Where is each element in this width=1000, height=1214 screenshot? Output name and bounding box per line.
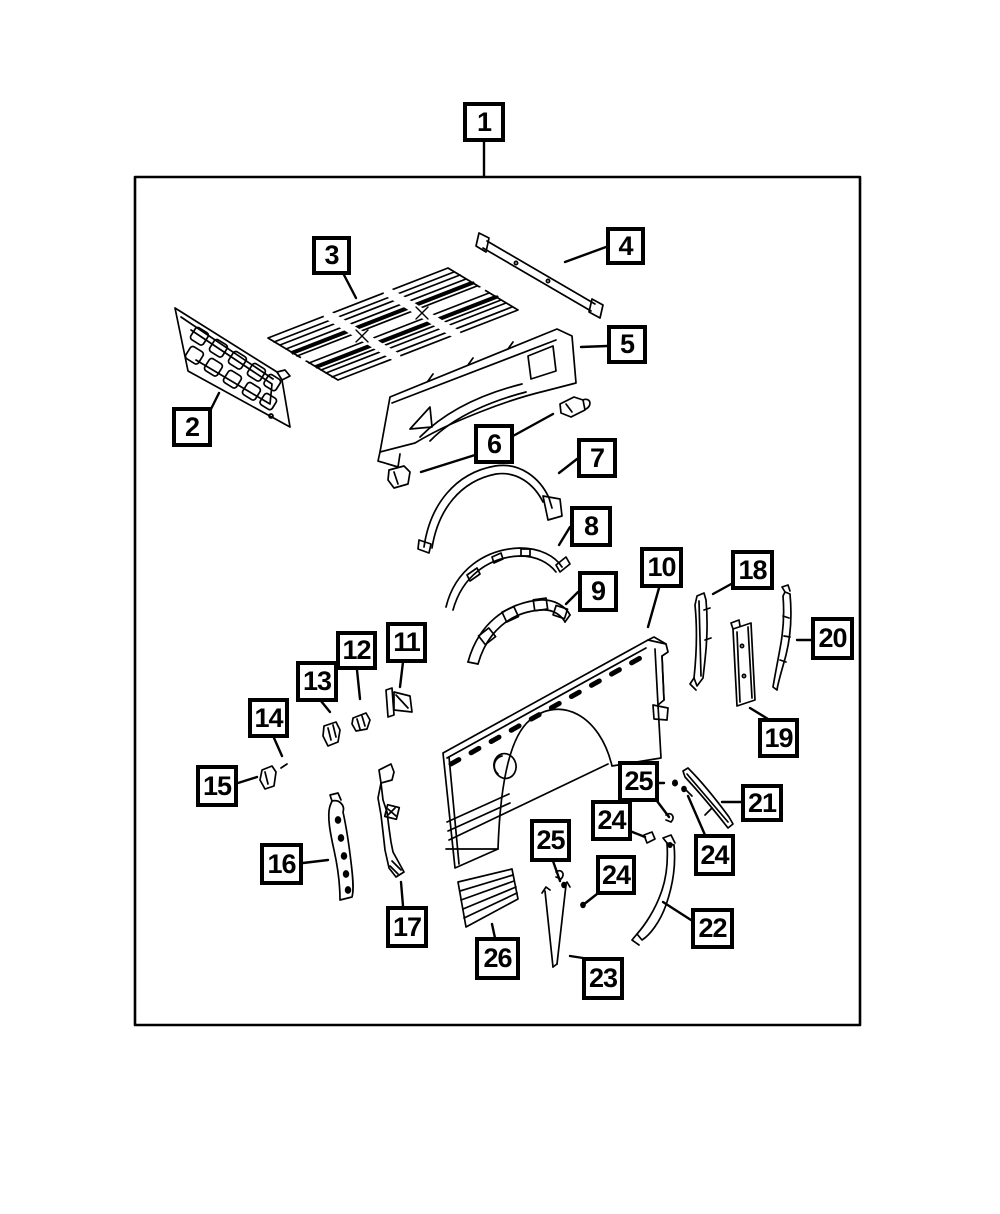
- part-9-inner-arch-drawing: [468, 598, 570, 664]
- callout-23[interactable]: 23: [582, 957, 624, 1000]
- part-23-seal-drawing: [542, 882, 570, 967]
- callout-24c[interactable]: 24: [596, 855, 636, 895]
- callout-17-label: 17: [393, 914, 421, 941]
- callout-20[interactable]: 20: [811, 617, 854, 660]
- part-17-brace-drawing: [378, 764, 404, 877]
- callout-22[interactable]: 22: [691, 908, 734, 949]
- callout-14[interactable]: 14: [248, 698, 289, 738]
- callout-10-label: 10: [647, 554, 675, 581]
- callout-12-label: 12: [342, 637, 370, 664]
- callout-21-label: 21: [748, 790, 776, 817]
- part-3-bed-floor-drawing: [268, 268, 518, 380]
- part-12-clip-drawing: [352, 713, 370, 731]
- callout-10[interactable]: 10: [640, 547, 683, 588]
- callout-25a[interactable]: 25: [618, 761, 659, 802]
- diagram-canvas: [0, 0, 1000, 1214]
- callout-21[interactable]: 21: [741, 784, 783, 822]
- part-16-brace-drawing: [329, 793, 353, 900]
- callout-25a-label: 25: [624, 768, 652, 795]
- callout-12[interactable]: 12: [336, 631, 377, 670]
- part-21-seal-strip-drawing: [683, 768, 733, 828]
- callout-25b-label: 25: [536, 827, 564, 854]
- callout-13[interactable]: 13: [296, 661, 338, 702]
- callout-11-label: 11: [393, 629, 420, 656]
- callout-25b[interactable]: 25: [530, 819, 571, 862]
- part-14-clip-drawing: [260, 764, 287, 789]
- callout-11[interactable]: 11: [386, 622, 427, 663]
- callout-6-label: 6: [487, 431, 501, 458]
- callout-7[interactable]: 7: [577, 438, 617, 478]
- callout-5-label: 5: [620, 331, 634, 358]
- callout-4-label: 4: [618, 233, 632, 260]
- callout-1-label: 1: [477, 109, 491, 136]
- callout-17[interactable]: 17: [386, 906, 428, 948]
- part-26-molding-drawing: [458, 869, 518, 927]
- callout-9-label: 9: [591, 578, 605, 605]
- callout-8[interactable]: 8: [570, 506, 612, 547]
- callout-2-label: 2: [185, 414, 199, 441]
- callout-18-label: 18: [738, 557, 766, 584]
- callout-15-label: 15: [203, 773, 231, 800]
- callout-3[interactable]: 3: [312, 236, 351, 275]
- callout-7-label: 7: [590, 445, 604, 472]
- callout-16-label: 16: [267, 851, 295, 878]
- callout-14-label: 14: [254, 705, 282, 732]
- callout-23-label: 23: [589, 965, 617, 992]
- callout-24a[interactable]: 24: [591, 800, 632, 841]
- part-18-stiffener-drawing: [690, 593, 711, 690]
- callout-24c-label: 24: [602, 862, 630, 889]
- callout-19-label: 19: [764, 725, 792, 752]
- callout-8-label: 8: [584, 513, 598, 540]
- part-19-reinforcement-drawing: [731, 620, 755, 706]
- callout-4[interactable]: 4: [606, 227, 645, 265]
- callout-22-label: 22: [698, 915, 726, 942]
- callout-13-label: 13: [303, 668, 331, 695]
- callout-2[interactable]: 2: [172, 407, 212, 447]
- part-13-clip-drawing: [323, 722, 340, 746]
- callout-15[interactable]: 15: [196, 765, 238, 807]
- callout-19[interactable]: 19: [758, 718, 799, 758]
- callout-20-label: 20: [818, 625, 846, 652]
- part-7-wheelhouse-outer-drawing: [418, 465, 562, 553]
- callout-18[interactable]: 18: [731, 550, 774, 590]
- part-11-bracket-drawing: [386, 688, 412, 717]
- callout-24b[interactable]: 24: [694, 834, 735, 876]
- part-4-crossmember-drawing: [476, 233, 603, 318]
- callout-26[interactable]: 26: [475, 937, 520, 980]
- diagram-border: [135, 177, 860, 1025]
- callout-1[interactable]: 1: [463, 102, 505, 142]
- callout-24a-label: 24: [597, 807, 625, 834]
- part-20-rail-trim-drawing: [773, 585, 791, 690]
- callout-26-label: 26: [483, 945, 511, 972]
- part-22-seal-rail-drawing: [632, 835, 675, 945]
- callout-5[interactable]: 5: [607, 325, 647, 364]
- callout-3-label: 3: [324, 242, 338, 269]
- callout-16[interactable]: 16: [260, 843, 303, 885]
- callout-24b-label: 24: [700, 842, 728, 869]
- callout-6[interactable]: 6: [474, 424, 514, 464]
- parts-diagram-page: 1 2 3 4 5 6 7 8 9 10 11 12 13 14 15 16 1…: [0, 0, 1000, 1214]
- callout-9[interactable]: 9: [578, 571, 618, 612]
